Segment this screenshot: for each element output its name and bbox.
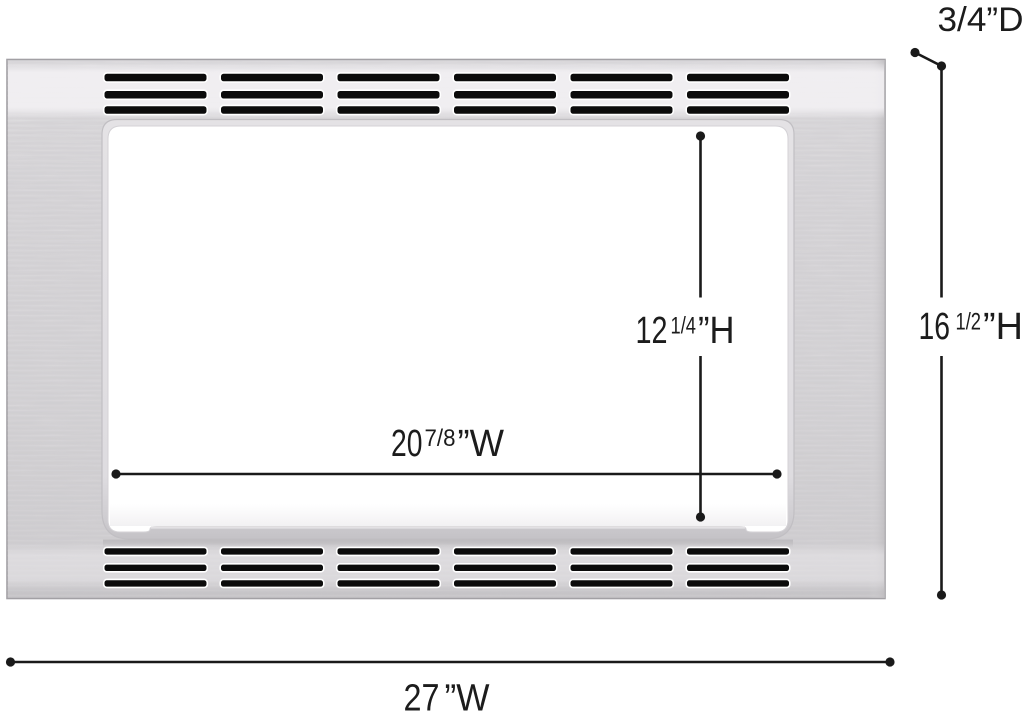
svg-text:16: 16 [919,306,951,348]
svg-text:3/4”D: 3/4”D [938,1,1024,39]
svg-text:27: 27 [404,678,440,714]
svg-text:”H: ”H [698,310,735,352]
svg-text:1/2: 1/2 [956,309,982,336]
svg-text:”W: ”W [458,423,505,465]
svg-text:”H: ”H [983,306,1023,348]
svg-text:12: 12 [636,310,668,352]
svg-text:7/8: 7/8 [425,425,456,452]
svg-text:1/4: 1/4 [671,313,697,340]
svg-text:”W: ”W [445,678,490,714]
svg-text:20: 20 [391,423,423,465]
